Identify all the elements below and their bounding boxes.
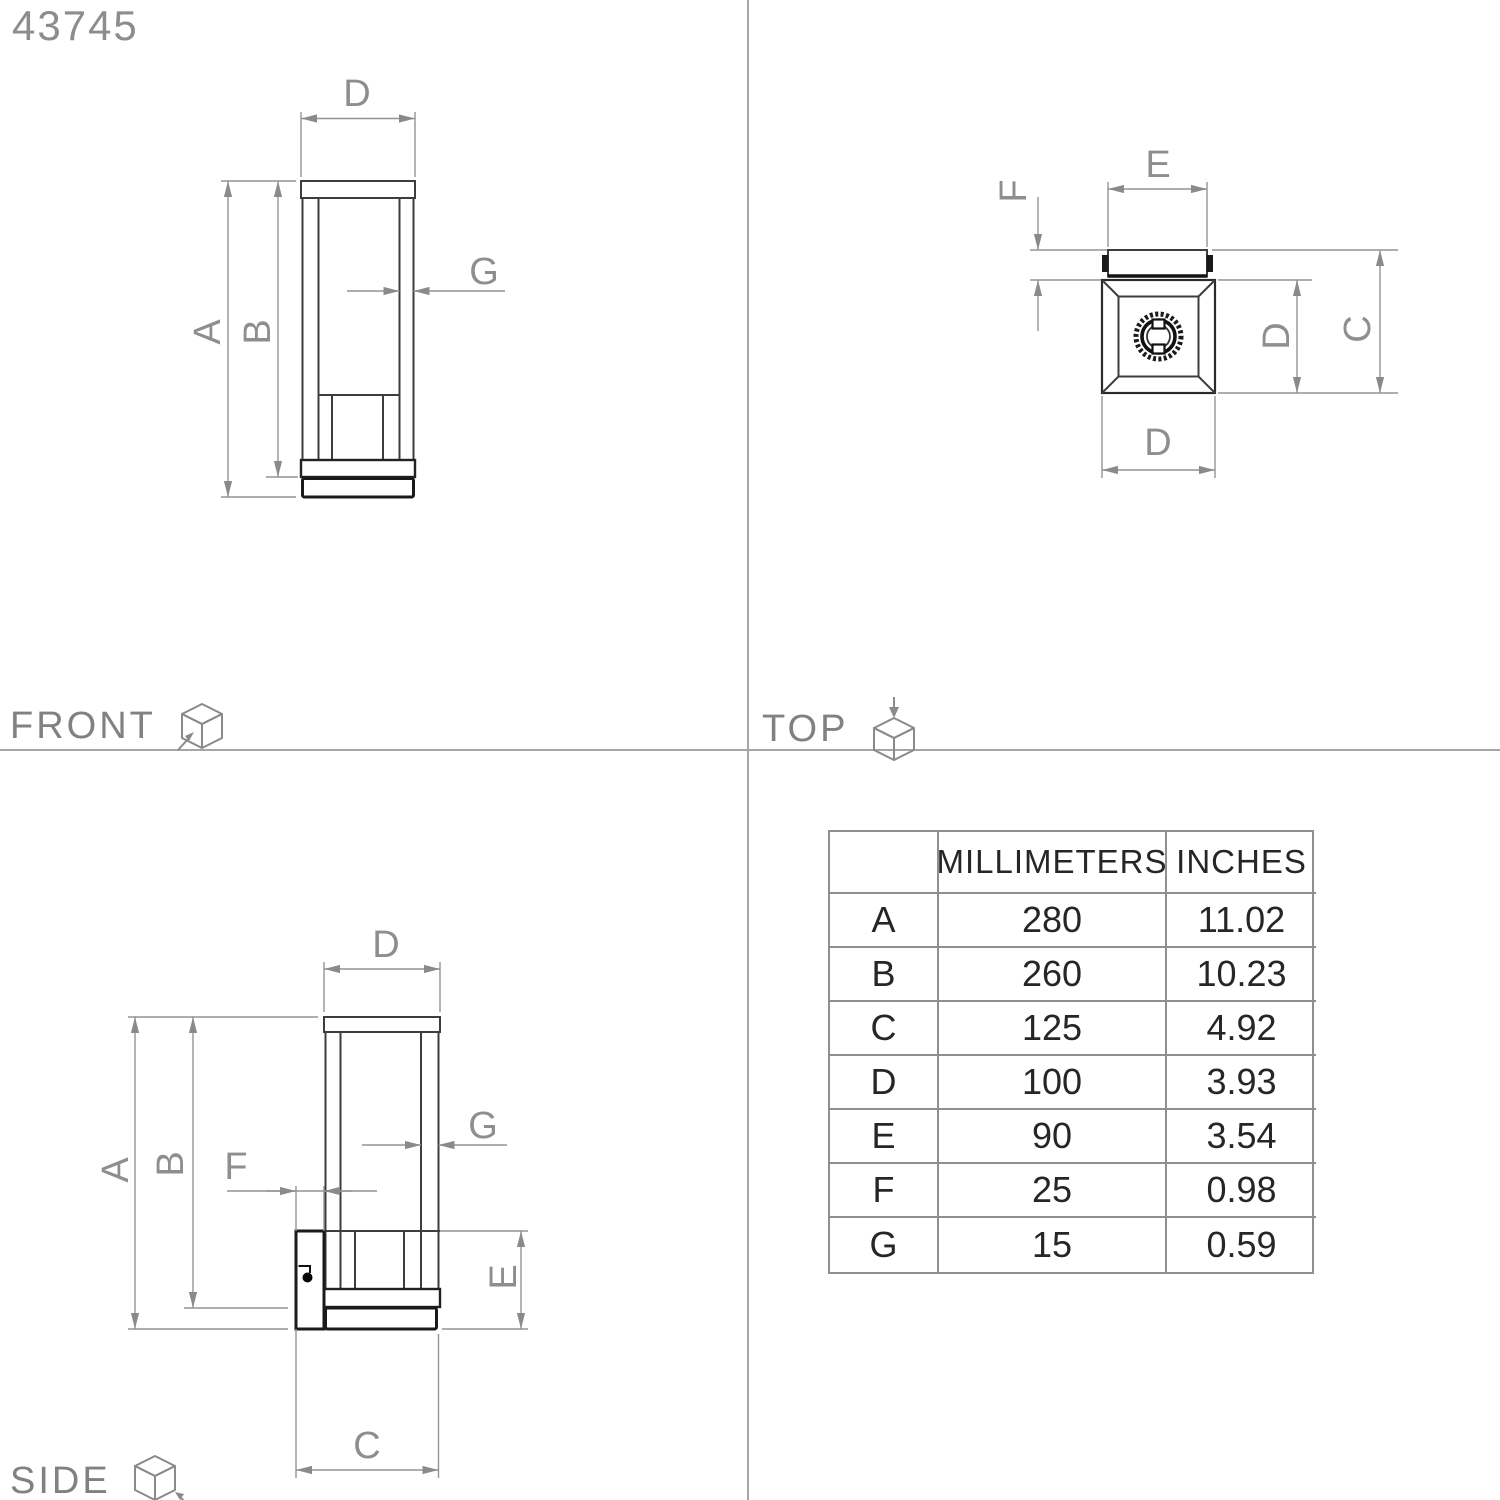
front-view-label-text: FRONT — [10, 705, 156, 748]
table-row-d-dim: D — [830, 1056, 939, 1110]
side-view-label-text: SIDE — [10, 1460, 111, 1500]
side-dim-label-f: F — [224, 1146, 247, 1188]
top-fixture-outline — [1102, 250, 1215, 393]
top-dimensions: E F D C D — [993, 144, 1398, 478]
top-dim-label-f: F — [993, 179, 1035, 202]
side-dim-label-b: B — [150, 1151, 192, 1176]
table-row-e-dim: E — [830, 1110, 939, 1164]
top-view-label: TOP — [762, 696, 920, 762]
side-view-drawing: D A B G F E — [95, 924, 528, 1478]
front-view-drawing: D A B G — [187, 73, 505, 497]
table-row-d-mm: 100 — [939, 1056, 1167, 1110]
front-view-label: FRONT — [10, 698, 228, 754]
table-row-c-mm: 125 — [939, 1002, 1167, 1056]
table-row-g-mm: 15 — [939, 1218, 1167, 1272]
front-dim-label-a: A — [187, 319, 229, 345]
side-view-label: SIDE — [10, 1452, 193, 1500]
front-dim-label-b: B — [237, 319, 279, 344]
table-row-g-dim: G — [830, 1218, 939, 1272]
side-dimensions: D A B G F E — [95, 924, 528, 1478]
table-row-e-inches: 3.54 — [1167, 1110, 1316, 1164]
front-fixture-outline — [301, 181, 415, 497]
table-row-d-inches: 3.93 — [1167, 1056, 1316, 1110]
table-row-c-dim: C — [830, 1002, 939, 1056]
top-dim-label-e: E — [1145, 144, 1170, 186]
table-row-a-mm: 280 — [939, 894, 1167, 948]
side-dim-label-d: D — [372, 924, 399, 966]
top-view-label-text: TOP — [762, 708, 848, 751]
side-dim-label-c: C — [353, 1425, 380, 1467]
top-dim-label-d-side: D — [1256, 322, 1298, 349]
table-row-f-dim: F — [830, 1164, 939, 1218]
table-header-millimeters: MILLIMETERS — [939, 832, 1167, 894]
front-dimensions: D A B G — [187, 73, 505, 497]
table-header-empty — [830, 832, 939, 894]
front-dim-label-d: D — [343, 73, 370, 115]
cube-side-view-icon — [131, 1452, 193, 1500]
table-row-f-inches: 0.98 — [1167, 1164, 1316, 1218]
table-row-b-dim: B — [830, 948, 939, 1002]
table-row-g-inches: 0.59 — [1167, 1218, 1316, 1272]
table-row-c-inches: 4.92 — [1167, 1002, 1316, 1056]
table-row-b-inches: 10.23 — [1167, 948, 1316, 1002]
table-header-inches: INCHES — [1167, 832, 1316, 894]
side-dim-label-e: E — [483, 1264, 525, 1289]
top-view-drawing: E F D C D — [993, 144, 1398, 478]
top-dim-label-c: C — [1337, 315, 1379, 342]
table-row-a-inches: 11.02 — [1167, 894, 1316, 948]
cube-top-view-icon — [868, 696, 920, 762]
table-row-b-mm: 260 — [939, 948, 1167, 1002]
cube-front-view-icon — [176, 698, 228, 754]
table-row-f-mm: 25 — [939, 1164, 1167, 1218]
part-number: 43745 — [12, 2, 139, 50]
side-dim-label-a: A — [95, 1157, 137, 1183]
technical-drawing-sheet: D A B G — [0, 0, 1500, 1500]
side-dim-label-g: G — [468, 1105, 498, 1147]
front-dim-label-g: G — [469, 251, 499, 293]
table-row-a-dim: A — [830, 894, 939, 948]
side-fixture-outline — [296, 1017, 440, 1329]
top-dim-label-d-bottom: D — [1144, 422, 1171, 464]
table-row-e-mm: 90 — [939, 1110, 1167, 1164]
screw-detail — [303, 1273, 313, 1283]
dimension-table: MILLIMETERS INCHES A 280 11.02 B 260 10.… — [828, 830, 1314, 1274]
lamp-socket — [1136, 314, 1181, 359]
